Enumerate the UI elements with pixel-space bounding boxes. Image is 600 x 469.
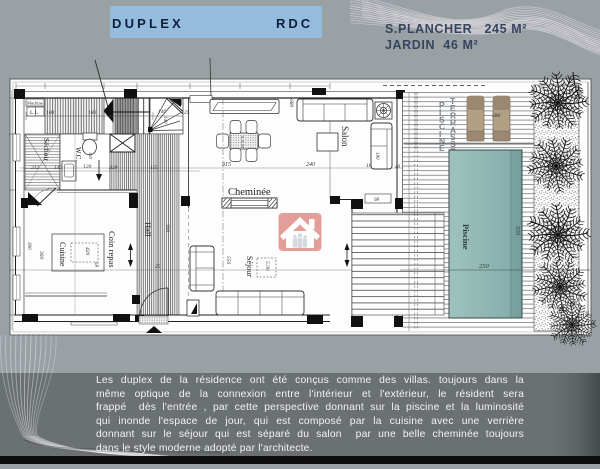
svg-text:Piscine: Piscine — [461, 224, 471, 250]
svg-text:40: 40 — [395, 165, 401, 170]
svg-text:PISCINE: PISCINE — [439, 100, 445, 153]
svg-text:140: 140 — [54, 164, 63, 171]
svg-text:DUPLEX: DUPLEX — [112, 16, 184, 31]
svg-text:5.30: 5.30 — [264, 261, 270, 271]
svg-text:L.L: L.L — [30, 110, 39, 116]
svg-text:120: 120 — [88, 152, 93, 160]
svg-text:360: 360 — [26, 242, 31, 250]
svg-text:Séjour: Séjour — [245, 256, 254, 277]
svg-text:Hall: Hall — [143, 222, 153, 237]
svg-text:580: 580 — [492, 113, 501, 119]
svg-text:300: 300 — [164, 223, 170, 233]
svg-text:100: 100 — [46, 110, 55, 116]
svg-text:JARDIN 46 M²: JARDIN 46 M² — [385, 38, 478, 52]
svg-text:Coin repas: Coin repas — [107, 231, 117, 268]
svg-text:S.A.M: S.A.M — [240, 136, 245, 148]
svg-text:315: 315 — [221, 162, 231, 168]
svg-text:Cheminée: Cheminée — [228, 187, 271, 198]
svg-text:420: 420 — [84, 247, 91, 256]
svg-text:550: 550 — [225, 256, 231, 265]
svg-text:25: 25 — [155, 264, 161, 270]
svg-text:180: 180 — [374, 152, 379, 160]
svg-text:680: 680 — [288, 99, 294, 108]
svg-text:RDC: RDC — [276, 16, 313, 31]
svg-text:250: 250 — [479, 263, 490, 270]
svg-text:Séchoir: Séchoir — [42, 138, 51, 161]
svg-text:S.PLANCHER 245 M²: S.PLANCHER 245 M² — [385, 22, 527, 36]
svg-text:58: 58 — [93, 262, 98, 268]
svg-text:550: 550 — [514, 226, 520, 235]
svg-text:98: 98 — [374, 198, 380, 203]
svg-text:140: 140 — [158, 108, 167, 115]
svg-text:Salon: Salon — [340, 126, 350, 147]
svg-text:Cuisine: Cuisine — [58, 242, 67, 267]
svg-text:Machine: Machine — [27, 101, 43, 106]
svg-text:240: 240 — [306, 161, 315, 168]
svg-text:140: 140 — [162, 116, 167, 124]
svg-text:120: 120 — [83, 164, 92, 170]
svg-text:180: 180 — [88, 110, 97, 116]
svg-text:TERRASSE: TERRASSE — [450, 96, 456, 156]
svg-text:360: 360 — [38, 250, 44, 260]
